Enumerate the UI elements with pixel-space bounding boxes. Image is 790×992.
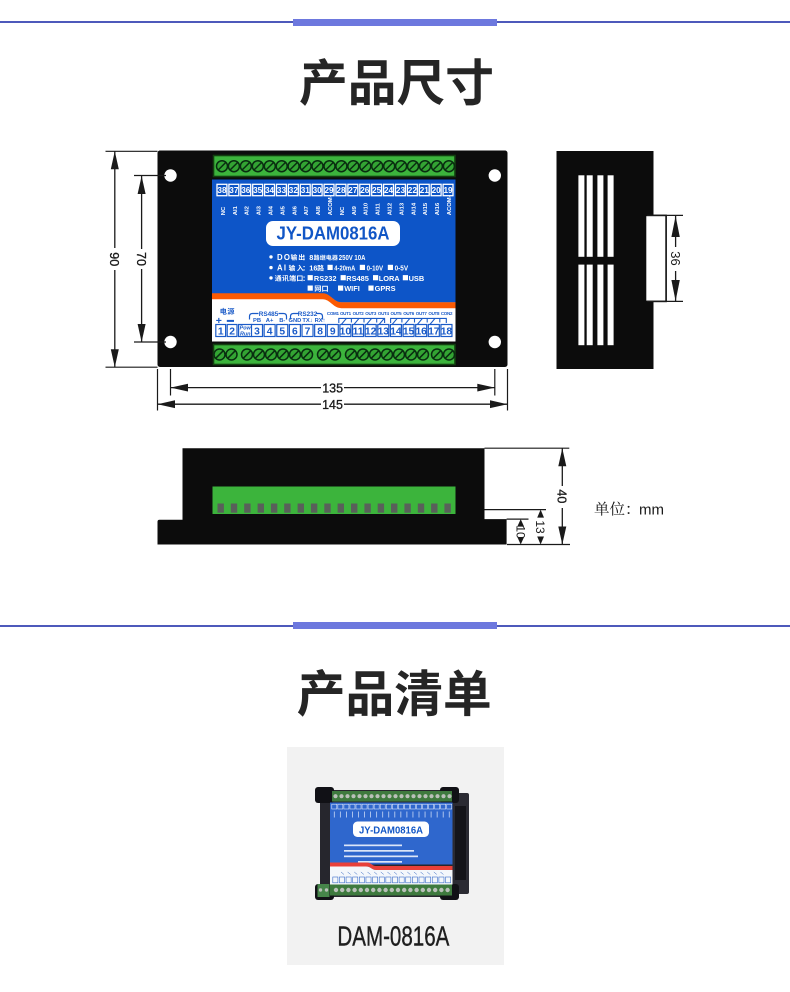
svg-text:14: 14	[390, 327, 402, 338]
svg-text:GND: GND	[288, 318, 301, 324]
svg-text:OUT3: OUT3	[365, 311, 377, 316]
svg-text:6: 6	[292, 327, 298, 338]
svg-text:0-5V: 0-5V	[395, 264, 409, 273]
svg-text:OUT1: OUT1	[340, 311, 352, 316]
svg-text:24: 24	[384, 186, 394, 195]
svg-text:Run: Run	[240, 332, 251, 338]
svg-text:USB: USB	[409, 274, 425, 283]
svg-text:AI15: AI15	[423, 202, 429, 215]
svg-text:11: 11	[353, 327, 364, 338]
svg-text:35: 35	[253, 186, 263, 195]
svg-text:AI12: AI12	[388, 202, 394, 215]
svg-text:WIFI: WIFI	[344, 284, 360, 293]
svg-text::: :	[303, 252, 306, 262]
svg-text:DO: DO	[277, 253, 291, 262]
svg-text:OUT8: OUT8	[428, 311, 440, 316]
svg-text:10: 10	[340, 327, 352, 338]
svg-text:JY-DAM0816A: JY-DAM0816A	[277, 224, 390, 244]
svg-text:RS485: RS485	[346, 274, 369, 283]
svg-text:38: 38	[217, 186, 227, 195]
svg-text::: :	[303, 263, 306, 273]
svg-text:AI11: AI11	[376, 202, 382, 215]
svg-text:23: 23	[396, 186, 406, 195]
svg-text:37: 37	[229, 186, 239, 195]
svg-text:16: 16	[309, 264, 317, 273]
svg-text:AI5: AI5	[280, 205, 286, 215]
svg-text:AI16: AI16	[435, 202, 441, 215]
svg-text:7: 7	[305, 327, 311, 338]
svg-text:28: 28	[336, 186, 346, 195]
svg-text:COM1: COM1	[327, 311, 340, 316]
svg-text:AI: AI	[277, 264, 287, 273]
svg-text:32: 32	[289, 186, 299, 195]
svg-text:OUT4: OUT4	[378, 311, 390, 316]
svg-text:RS232: RS232	[314, 274, 337, 283]
svg-text:16: 16	[415, 327, 427, 338]
svg-text:B-: B-	[279, 318, 285, 324]
svg-text:JY-DAM0816A: JY-DAM0816A	[359, 826, 423, 837]
svg-text:36: 36	[241, 186, 251, 195]
svg-text:8: 8	[309, 253, 313, 262]
svg-text:40: 40	[555, 489, 569, 503]
svg-text:34: 34	[265, 186, 275, 195]
svg-text:10: 10	[513, 525, 527, 539]
svg-text:NC: NC	[221, 206, 227, 215]
svg-text:27: 27	[348, 186, 358, 195]
svg-text:21: 21	[420, 186, 430, 195]
svg-text:26: 26	[360, 186, 370, 195]
svg-text:OUT6: OUT6	[403, 311, 415, 316]
svg-text:RS485: RS485	[259, 311, 279, 318]
svg-text:90: 90	[107, 252, 121, 266]
svg-text:OUT2: OUT2	[353, 311, 365, 316]
svg-text:8: 8	[317, 327, 323, 338]
svg-text:AI8: AI8	[316, 205, 322, 215]
svg-text:33: 33	[277, 186, 287, 195]
svg-text:AI6: AI6	[292, 205, 298, 215]
svg-text:20: 20	[432, 186, 442, 195]
svg-text:AI10: AI10	[364, 202, 370, 215]
svg-text:1: 1	[218, 327, 224, 338]
svg-text:AI9: AI9	[352, 205, 358, 215]
svg-text:PB: PB	[253, 318, 261, 324]
svg-text:30: 30	[313, 186, 323, 195]
svg-text:18: 18	[441, 327, 453, 338]
svg-text:AI1: AI1	[233, 205, 239, 215]
svg-text:AI13: AI13	[399, 202, 405, 215]
svg-text:36: 36	[668, 251, 683, 265]
svg-text:AI3: AI3	[257, 205, 263, 215]
svg-text:ACOM-: ACOM-	[328, 195, 334, 215]
svg-text:AI14: AI14	[411, 202, 417, 215]
svg-text:RS232: RS232	[298, 311, 318, 318]
svg-text:GPRS: GPRS	[375, 284, 396, 293]
svg-text:mm: mm	[639, 502, 664, 519]
svg-text:OUT5: OUT5	[390, 311, 402, 316]
svg-text:4-20mA: 4-20mA	[334, 264, 356, 273]
svg-text:17: 17	[428, 327, 440, 338]
svg-text:RX↑: RX↑	[315, 318, 326, 324]
svg-text:19: 19	[443, 186, 453, 195]
svg-text:145: 145	[322, 398, 343, 412]
svg-text:29: 29	[324, 186, 334, 195]
svg-text:TX↓: TX↓	[302, 318, 312, 324]
svg-text:AI2: AI2	[245, 205, 251, 215]
svg-text:25: 25	[372, 186, 382, 195]
svg-text:9: 9	[330, 327, 336, 338]
svg-text:LORA: LORA	[379, 274, 401, 283]
svg-text:ACOM-: ACOM-	[447, 195, 453, 215]
svg-text:OUT7: OUT7	[416, 311, 428, 316]
svg-text:22: 22	[408, 186, 418, 195]
svg-text:4: 4	[267, 327, 273, 338]
svg-text:NC: NC	[340, 206, 346, 215]
svg-text:5: 5	[279, 327, 285, 338]
svg-text:AI4: AI4	[269, 205, 275, 215]
svg-text:2: 2	[229, 327, 235, 338]
svg-text:13: 13	[378, 327, 390, 338]
svg-text:31: 31	[301, 186, 311, 195]
svg-text:3: 3	[254, 327, 260, 338]
svg-text::: :	[303, 273, 306, 283]
svg-text:AI7: AI7	[304, 205, 310, 215]
svg-text:12: 12	[365, 327, 377, 338]
svg-text:0-10V: 0-10V	[367, 264, 384, 273]
svg-text:70: 70	[134, 252, 148, 266]
svg-text:CON2: CON2	[441, 311, 453, 316]
svg-text:135: 135	[322, 381, 343, 395]
svg-text:250V 10A: 250V 10A	[339, 253, 366, 262]
svg-text:DAM-0816A: DAM-0816A	[337, 921, 449, 952]
svg-text:13: 13	[533, 520, 547, 534]
svg-text:A+: A+	[266, 318, 274, 324]
svg-text:15: 15	[403, 327, 415, 338]
